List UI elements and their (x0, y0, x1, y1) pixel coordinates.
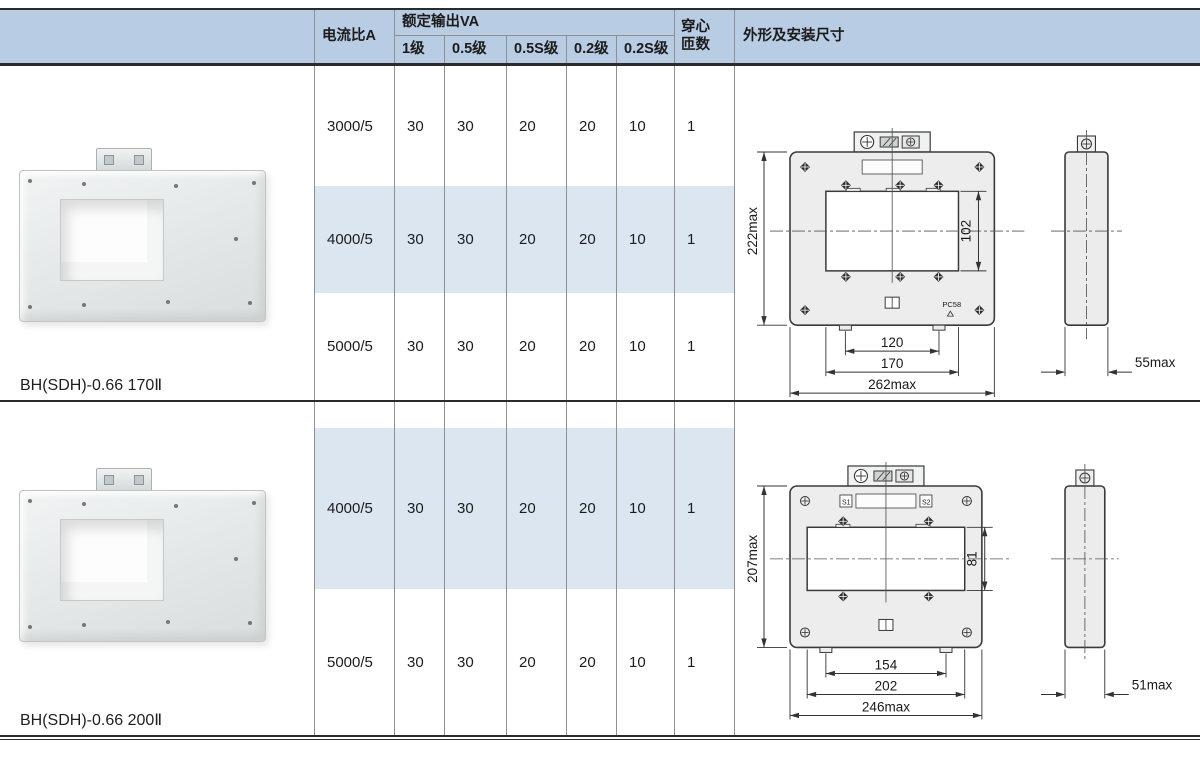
ratio-cell: 5000/5 (315, 589, 395, 735)
ratio-cell: 5000/5 (315, 293, 395, 400)
header-turns-line2: 匝数 (681, 37, 710, 54)
table-header: 电流比A 额定输出VA 1级 0.5级 0.5S级 0.2级 0.2S级 穿心 … (0, 10, 1200, 63)
product-cell-170: BH(SDH)-0.66 170Ⅱ (0, 66, 315, 400)
transformer-window (60, 519, 164, 601)
value-cell: 30 (395, 589, 445, 735)
dim-label: 207max (745, 535, 760, 583)
header-dimensions: 外形及安装尺寸 (735, 10, 1200, 63)
terminal-block (96, 148, 152, 172)
spacer-cell (315, 402, 395, 428)
value-cell: 30 (395, 428, 445, 589)
value-cell: 30 (395, 66, 445, 186)
value-cell: 30 (395, 186, 445, 293)
product-photo-200 (18, 468, 268, 666)
value-cell: 20 (507, 186, 567, 293)
model-label-200: BH(SDH)-0.66 200Ⅱ (20, 710, 162, 730)
dim-label: 262max (868, 377, 916, 392)
drawing-cell-200: S1S2207max81154202246max51max (735, 402, 1200, 735)
terminal-block (96, 468, 152, 492)
value-cell: 20 (507, 428, 567, 589)
header-class-05: 0.5级 (445, 36, 507, 63)
header-turns-line1: 穿心 (681, 19, 710, 36)
value-cell: 10 (617, 428, 675, 589)
header-turns: 穿心 匝数 (675, 10, 735, 63)
transformer-window (60, 199, 164, 281)
value-cell: 30 (445, 589, 507, 735)
value-cell: 20 (507, 589, 567, 735)
spacer-cell (617, 402, 675, 428)
spacer-cell (445, 402, 507, 428)
value-cell: 20 (507, 293, 567, 400)
value-cell: 10 (617, 186, 675, 293)
turns-cell: 1 (675, 186, 735, 293)
spacer-cell (567, 402, 617, 428)
dim-label: 202 (875, 678, 898, 693)
header-current-ratio: 电流比A (315, 10, 395, 63)
value-cell: 30 (445, 293, 507, 400)
spacer-cell (675, 402, 735, 428)
dim-label: 120 (881, 335, 904, 350)
value-cell: 20 (567, 428, 617, 589)
value-cell: 20 (567, 66, 617, 186)
value-cell: 20 (507, 66, 567, 186)
dim-label: 246max (862, 699, 910, 714)
terminal-bolt (104, 155, 114, 165)
dim-label: 222max (745, 207, 760, 255)
model-label-170: BH(SDH)-0.66 170Ⅱ (20, 375, 162, 395)
turns-cell: 1 (675, 293, 735, 400)
transformer-body (19, 490, 266, 642)
value-cell: 30 (445, 428, 507, 589)
product-photo-170 (18, 148, 268, 346)
value-cell: 30 (395, 293, 445, 400)
terminal-bolt (134, 475, 144, 485)
header-class-05s: 0.5S级 (507, 36, 567, 63)
turns-cell: 1 (675, 66, 735, 186)
value-cell: 20 (567, 589, 617, 735)
dimension-drawing-200: S1S2207max81154202246max51max (735, 446, 1195, 735)
value-cell: 30 (445, 66, 507, 186)
bottom-rule-thick (0, 735, 1200, 737)
dim-label: PC58 (942, 300, 961, 309)
dim-label: 102 (958, 220, 973, 243)
header-class-02: 0.2级 (567, 36, 617, 63)
bottom-rule-thin (0, 739, 1200, 740)
dim-label: 154 (875, 657, 898, 672)
dim-label: 170 (881, 356, 904, 371)
ratio-cell: 4000/5 (315, 428, 395, 589)
section-200: BH(SDH)-0.66 200Ⅱ 4000/5 30 30 20 20 10 … (0, 402, 1200, 735)
header-rated-output-group: 额定输出VA (395, 10, 675, 36)
value-cell: 10 (617, 293, 675, 400)
dimension-drawing-170: PC58222max102120170262max55max (735, 112, 1195, 400)
spacer-cell (507, 402, 567, 428)
value-cell: 10 (617, 66, 675, 186)
dim-label: S1 (842, 500, 851, 507)
value-cell: 10 (617, 589, 675, 735)
product-cell-200: BH(SDH)-0.66 200Ⅱ (0, 402, 315, 735)
dim-label: 55max (1135, 355, 1176, 370)
header-class-02s: 0.2S级 (617, 36, 675, 63)
ratio-cell: 4000/5 (315, 186, 395, 293)
spacer-cell (395, 402, 445, 428)
dim-label: 51max (1132, 677, 1173, 692)
turns-cell: 1 (675, 428, 735, 589)
header-class-1: 1级 (395, 36, 445, 63)
drawing-cell-170: PC58222max102120170262max55max (735, 66, 1200, 400)
ratio-cell: 3000/5 (315, 66, 395, 186)
transformer-body (19, 170, 266, 322)
terminal-bolt (104, 475, 114, 485)
dim-label: S2 (922, 500, 931, 507)
catalog-page: 电流比A 额定输出VA 1级 0.5级 0.5S级 0.2级 0.2S级 穿心 … (0, 0, 1200, 760)
turns-cell: 1 (675, 589, 735, 735)
section-170: BH(SDH)-0.66 170Ⅱ 3000/5 30 30 20 20 10 … (0, 66, 1200, 400)
value-cell: 30 (445, 186, 507, 293)
value-cell: 20 (567, 293, 617, 400)
header-photo-column (0, 10, 315, 63)
dim-label: 81 (965, 551, 980, 566)
terminal-bolt (134, 155, 144, 165)
value-cell: 20 (567, 186, 617, 293)
